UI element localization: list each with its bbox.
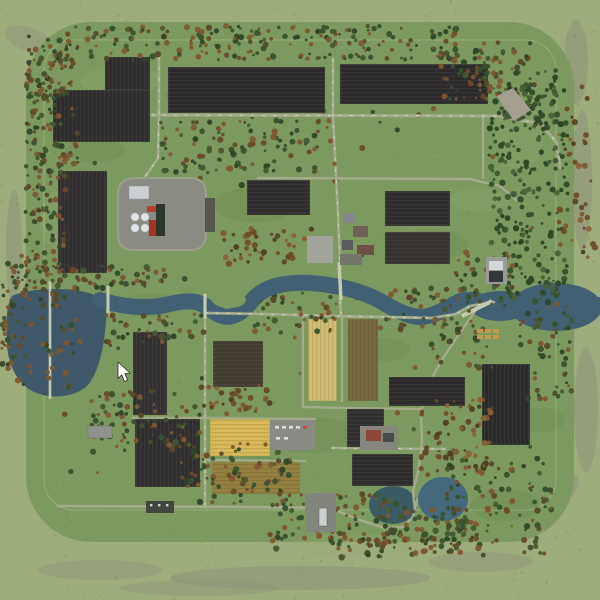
village-building-3 — [342, 240, 353, 250]
road-vehicle-dot-1 — [150, 504, 152, 506]
silo-tank-4 — [141, 224, 149, 232]
game-map-view[interactable] — [0, 0, 600, 600]
farm-building-dark — [383, 433, 394, 442]
map-canvas[interactable] — [0, 0, 600, 600]
parked-car-2 — [282, 426, 286, 429]
village-yard — [340, 254, 362, 265]
beehive-3 — [493, 329, 499, 333]
red-equipment — [149, 220, 157, 236]
beehive-2 — [485, 329, 491, 333]
church-statue — [319, 508, 327, 526]
village-building-2 — [353, 226, 368, 237]
parking-lot — [270, 420, 315, 450]
village-building-4 — [357, 245, 374, 255]
beehive-1 — [477, 329, 483, 333]
red-equipment-2 — [147, 206, 156, 212]
bridge-center — [339, 262, 341, 300]
beehive-6 — [493, 335, 499, 339]
silo-tank-2 — [141, 213, 149, 221]
loading-hopper — [205, 198, 215, 232]
village-building-1 — [343, 213, 356, 223]
parked-car-3 — [289, 426, 293, 429]
road-vehicle-dot-2 — [158, 504, 160, 506]
silo-tank-3 — [131, 224, 139, 232]
beehive-5 — [485, 335, 491, 339]
silo-tank-1 — [131, 213, 139, 221]
parked-car-5 — [276, 437, 280, 440]
riverside-house-roof — [489, 261, 503, 270]
riverside-house-dark — [489, 271, 503, 282]
parked-car-4 — [296, 426, 300, 429]
parked-car-red — [303, 426, 307, 429]
beehive-4 — [477, 335, 483, 339]
container-stack — [156, 204, 165, 236]
parked-car-6 — [284, 437, 288, 440]
road-vehicle-dot-3 — [166, 504, 168, 506]
farm-building-red — [366, 430, 381, 441]
village-square — [307, 236, 333, 263]
west-building — [88, 426, 112, 438]
road-vehicles — [146, 501, 174, 513]
elevator-building — [129, 186, 149, 199]
parked-car-1 — [275, 426, 279, 429]
